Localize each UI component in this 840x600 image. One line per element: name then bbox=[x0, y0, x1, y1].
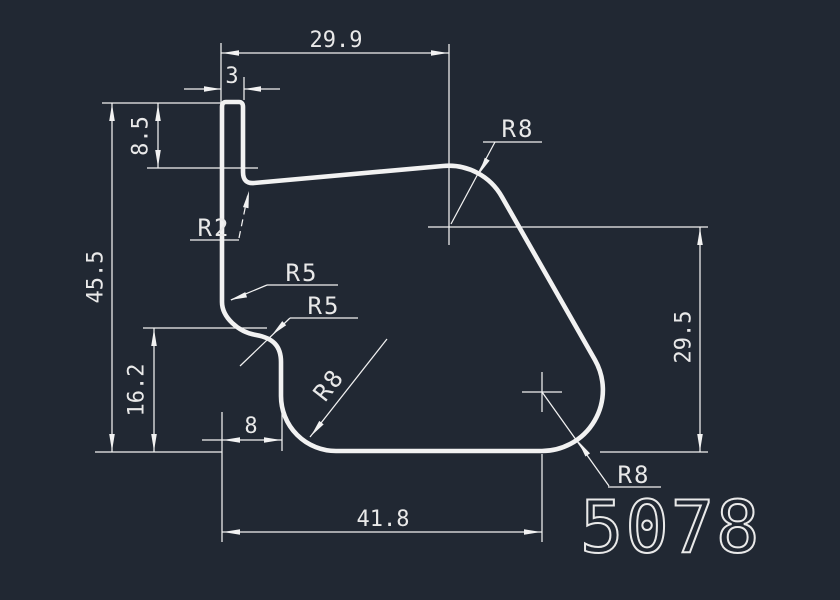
dimension-arrow bbox=[109, 104, 115, 121]
dimension-arrow bbox=[431, 50, 448, 56]
drawing-svg: 29.9 3 8.5 45.5 16.2 8 41.8 29.5 R8 R2 R… bbox=[0, 0, 840, 600]
leader-arrow bbox=[243, 190, 252, 208]
radius-text-top-right: R8 bbox=[502, 115, 535, 143]
dim-text-bottom-width: 41.8 bbox=[357, 507, 410, 532]
dimension-arrow bbox=[204, 86, 221, 92]
dim-text-total-height: 45.5 bbox=[84, 251, 109, 304]
dimension-arrow bbox=[697, 228, 703, 245]
dim-text-tab-depth: 8.5 bbox=[129, 116, 154, 156]
dimension-arrow bbox=[524, 529, 541, 535]
dimension-arrow bbox=[151, 329, 157, 346]
dimension-arrow bbox=[222, 50, 239, 56]
dimension-arrow bbox=[697, 434, 703, 451]
dimension-arrow bbox=[244, 86, 261, 92]
radius-text-bottom-left: R8 bbox=[308, 363, 350, 406]
radius-text-s-lower: R5 bbox=[308, 292, 341, 320]
part-number: 5078 bbox=[580, 485, 761, 569]
dimension-arrow bbox=[223, 437, 240, 443]
dimension-arrow bbox=[155, 104, 161, 121]
dimension-arrow bbox=[223, 529, 240, 535]
radius-leaders bbox=[190, 142, 661, 487]
dimension-arrow bbox=[155, 150, 161, 167]
radius-text-s-upper: R5 bbox=[286, 259, 319, 287]
radius-text-notch: R2 bbox=[198, 214, 231, 242]
leader-arrow bbox=[229, 292, 247, 303]
dimension-arrow bbox=[109, 434, 115, 451]
dimension-lines bbox=[112, 53, 700, 532]
dimension-arrow bbox=[264, 437, 281, 443]
dim-text-lower-height: 16.2 bbox=[125, 364, 150, 417]
extension-lines bbox=[95, 43, 708, 542]
profile-outline bbox=[222, 102, 603, 451]
cad-drawing-canvas[interactable]: 29.9 3 8.5 45.5 16.2 8 41.8 29.5 R8 R2 R… bbox=[0, 0, 840, 600]
leader-arrow bbox=[270, 321, 286, 337]
dim-text-right-height: 29.5 bbox=[672, 311, 697, 364]
dimension-arrow bbox=[151, 434, 157, 451]
dim-text-top-width: 29.9 bbox=[310, 28, 363, 53]
dim-text-step-width: 8 bbox=[244, 414, 257, 439]
dim-text-tab-width: 3 bbox=[225, 64, 238, 89]
dimension-arrows bbox=[109, 50, 703, 535]
